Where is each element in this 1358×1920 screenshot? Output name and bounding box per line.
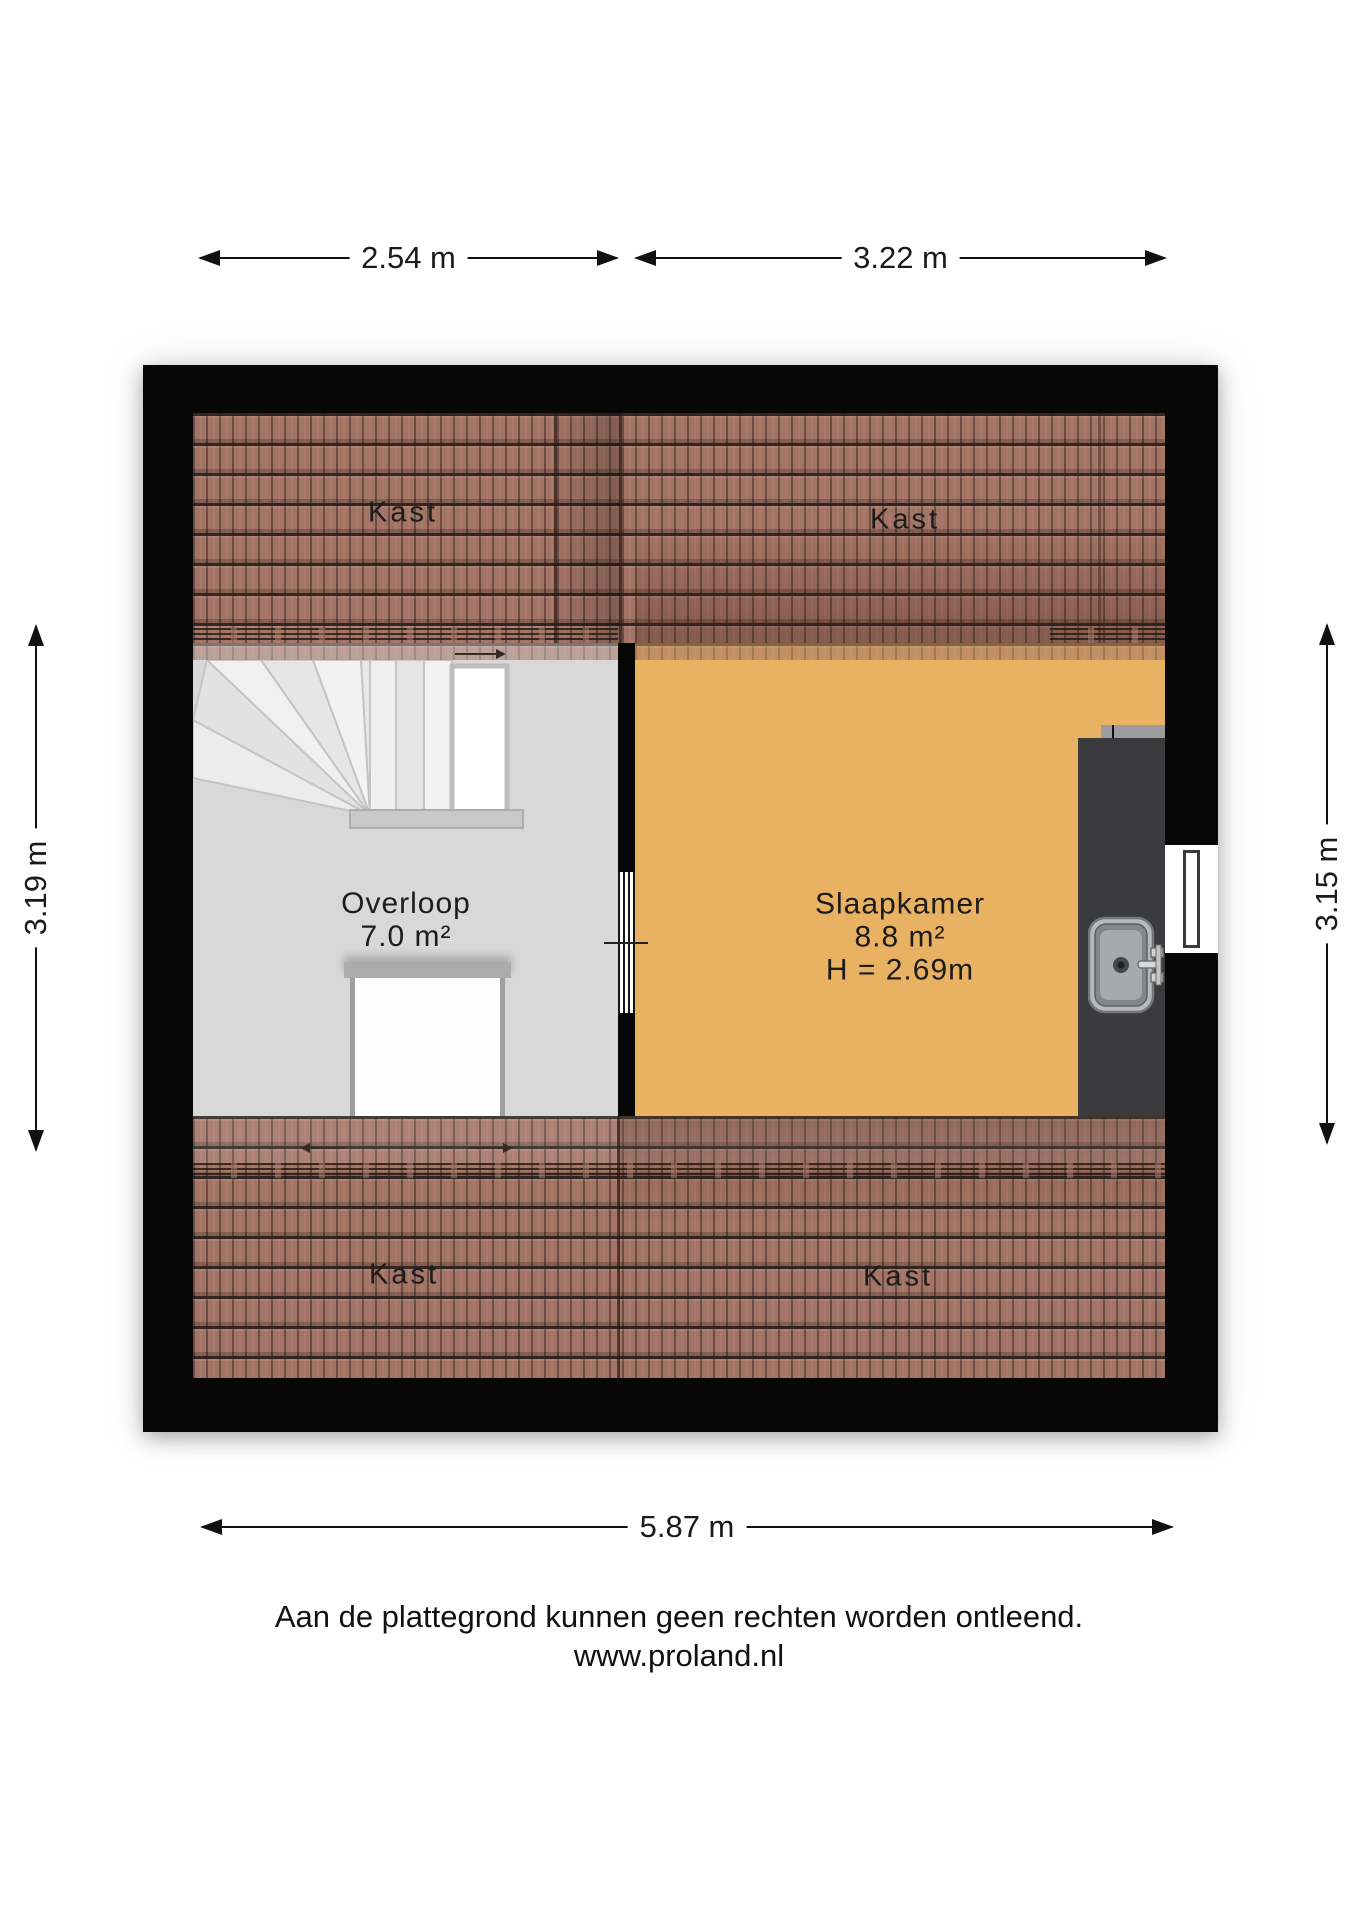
arrow-down-icon — [28, 1130, 44, 1152]
label-kast-bottom-left: Kast — [369, 1259, 439, 1292]
door-lintel — [344, 962, 511, 978]
dimension-label: 5.87 m — [628, 1509, 747, 1545]
room-name: Slaapkamer — [815, 888, 985, 921]
roof-gutter-lines — [1050, 628, 1165, 643]
label-slaapkamer: Slaapkamer 8.8 m² H = 2.69m — [815, 888, 985, 987]
label-kast-bottom-right: Kast — [863, 1261, 933, 1294]
window — [1165, 845, 1218, 953]
disclaimer-line2: www.proland.nl — [0, 1636, 1358, 1675]
floorplan: Kast Kast Kast Kast Overloop 7.0 m² Slaa… — [143, 365, 1218, 1432]
roof-seam — [619, 413, 622, 643]
door-panel — [344, 962, 511, 1116]
arrow-up-icon — [28, 624, 44, 646]
stair-landing-edge — [350, 810, 523, 828]
label-overloop: Overloop 7.0 m² — [341, 887, 471, 953]
counter-top-edge — [1101, 725, 1165, 738]
arrow-right-icon — [597, 250, 619, 266]
room-name: Overloop — [341, 887, 471, 920]
dimension-top-right: 3.22 m — [634, 240, 1167, 276]
label-kast-top-right: Kast — [870, 504, 940, 537]
room-area: 8.8 m² — [815, 921, 985, 954]
arrow-down-icon — [1319, 1123, 1335, 1145]
door-swing-tick — [604, 942, 648, 944]
arrow-up-icon — [1319, 623, 1335, 645]
label-kast-top-left: Kast — [368, 497, 438, 530]
dimension-right: 3.15 m — [1309, 623, 1345, 1145]
roof-gutter-lines — [193, 628, 618, 643]
arrow-left-icon — [200, 1519, 222, 1535]
roof-slope-arrow-icon — [309, 1147, 345, 1149]
floorplan-page: 2.54 m 3.22 m 3.19 m 3.15 m 5.87 m — [0, 0, 1358, 1920]
roof-slope-arrow-icon — [468, 1147, 504, 1149]
window-frame — [1183, 850, 1200, 948]
winder-stairs — [193, 660, 533, 832]
roof-seam — [1098, 413, 1101, 643]
roof-band-top — [193, 413, 1165, 643]
dimension-bottom: 5.87 m — [200, 1509, 1174, 1545]
roof-overhang-strip — [193, 643, 1165, 660]
roof-light-strip — [193, 1116, 1165, 1163]
dimension-top-left: 2.54 m — [198, 240, 619, 276]
roof-shade — [635, 523, 1165, 643]
arrow-left-icon — [634, 250, 656, 266]
disclaimer: Aan de plattegrond kunnen geen rechten w… — [0, 1597, 1358, 1675]
disclaimer-line1: Aan de plattegrond kunnen geen rechten w… — [0, 1597, 1358, 1636]
roof-slope-arrow-icon — [455, 653, 497, 655]
divider-wall — [618, 643, 635, 1116]
dimension-left: 3.19 m — [18, 624, 54, 1152]
room-height: H = 2.69m — [815, 954, 985, 987]
dimension-label: 3.22 m — [841, 240, 960, 276]
roof-seam — [554, 413, 557, 643]
dimension-label: 3.19 m — [18, 829, 54, 948]
sink-icon — [1088, 915, 1166, 1015]
room-area: 7.0 m² — [341, 920, 471, 953]
counter-tick — [1112, 725, 1114, 738]
arrow-left-icon — [198, 250, 220, 266]
arrow-right-icon — [1145, 250, 1167, 266]
door-leaf — [350, 978, 505, 1116]
arrow-right-icon — [1152, 1519, 1174, 1535]
roof-seam-shadow — [554, 413, 620, 643]
stair-void — [452, 666, 507, 812]
dimension-label: 2.54 m — [349, 240, 468, 276]
roof-seam — [617, 1116, 620, 1378]
dimension-label: 3.15 m — [1309, 825, 1345, 944]
roof-gutter-lines — [193, 1163, 1165, 1178]
roof-band-bottom — [193, 1116, 1165, 1378]
